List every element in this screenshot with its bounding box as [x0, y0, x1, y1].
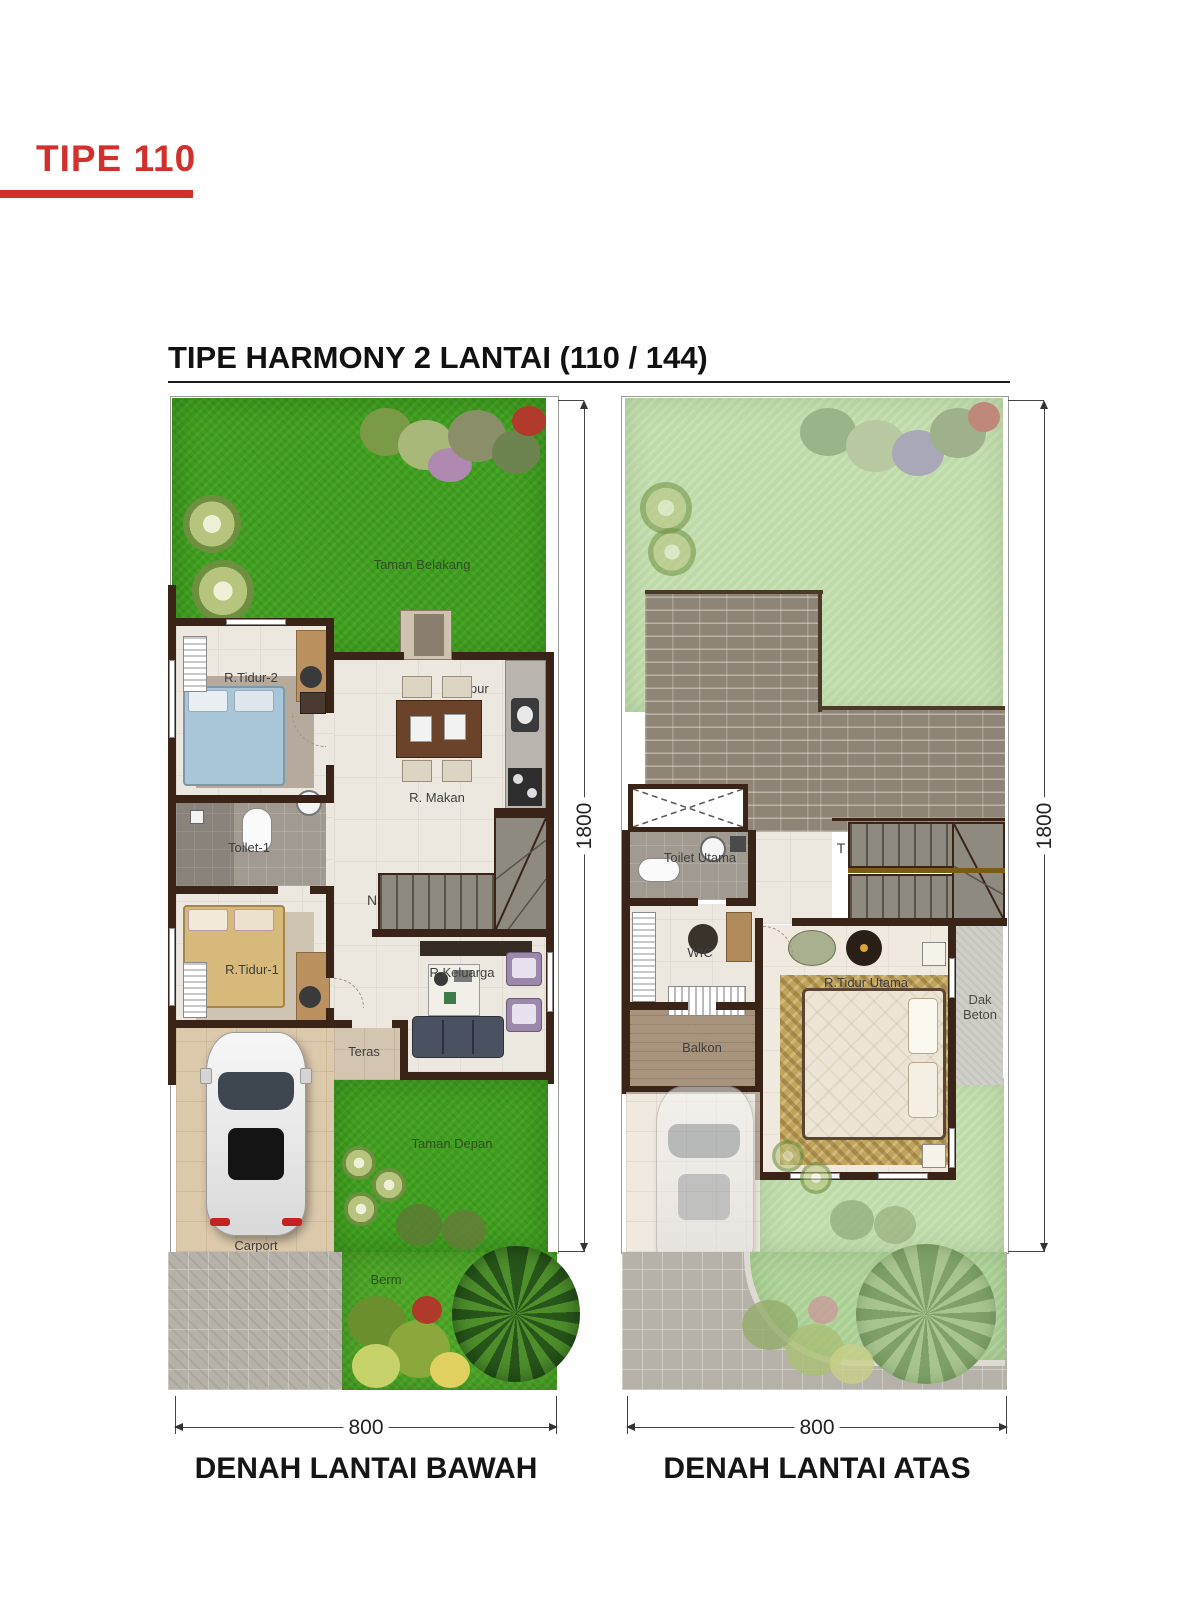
caption-denah-lantai-atas: DENAH LANTAI ATAS	[663, 1452, 970, 1486]
dining-chair	[402, 676, 432, 698]
window	[169, 660, 175, 738]
window	[949, 1128, 955, 1168]
floorplan-page: TIPE 110 TIPE HARMONY 2 LANTAI (110 / 14…	[0, 0, 1200, 1604]
wall-segment	[452, 652, 554, 660]
plant-faded	[968, 402, 1000, 432]
wall-segment	[792, 918, 1007, 926]
stair-marker-n: N	[367, 892, 377, 908]
lounge-chair	[788, 930, 836, 966]
plant	[512, 406, 546, 436]
room-label-berm: Berm	[370, 1272, 401, 1287]
dim-ext-line	[1008, 1251, 1044, 1252]
room-label-r-keluarga: R.Keluarga	[429, 965, 494, 980]
title-underline	[168, 381, 1010, 383]
plant-faded	[772, 1140, 804, 1172]
bawah-stairs-flight	[378, 873, 496, 931]
plant	[342, 1146, 376, 1180]
shower-area	[176, 803, 234, 886]
roof-edge	[818, 706, 1005, 710]
roof-edge	[645, 590, 823, 594]
dining-chair	[442, 760, 472, 782]
room-label-toilet-1: Toilet-1	[228, 840, 270, 855]
dining-chair	[442, 676, 472, 698]
room-label-taman-depan: Taman Depan	[412, 1136, 493, 1151]
laptop	[300, 692, 326, 714]
place-setting	[410, 716, 432, 742]
wall-segment	[726, 898, 756, 906]
wall-segment	[494, 808, 552, 816]
vanity-desk	[726, 912, 752, 962]
room-label-r-tidur-1: R.Tidur-1	[225, 962, 279, 977]
caption-denah-lantai-bawah: DENAH LANTAI BAWAH	[195, 1452, 538, 1486]
wall-segment	[372, 929, 552, 937]
plant	[430, 1352, 470, 1388]
dim-value-1800-atas: 1800	[1033, 798, 1057, 855]
wall-segment	[334, 652, 404, 660]
wardrobe	[632, 912, 656, 1002]
wardrobe	[183, 636, 207, 692]
room-label-dak-beton: Dak Beton	[958, 992, 1002, 1022]
palm-tree	[452, 1246, 580, 1382]
plant	[352, 1344, 400, 1388]
plant-faded	[830, 1200, 874, 1240]
room-label-r-makan: R. Makan	[409, 790, 465, 805]
bawah-stairs-winder	[494, 816, 548, 931]
car-sunroof	[228, 1128, 284, 1180]
dim-arrow	[999, 1423, 1008, 1431]
pillow	[234, 909, 274, 931]
plant-faded	[874, 1206, 916, 1244]
window	[169, 928, 175, 1006]
car-mirror	[300, 1068, 312, 1084]
dim-arrow	[580, 1243, 588, 1252]
room-label-wic: WIC	[687, 945, 712, 960]
plant	[344, 1192, 378, 1226]
atas-stairs-upper-flight	[848, 822, 954, 868]
room-label-r-tidur-utama: R.Tidur Utama	[824, 975, 908, 990]
room-label-taman-belakang: Taman Belakang	[374, 557, 471, 572]
room-label-toilet-utama: Toilet Utama	[664, 850, 736, 865]
winder-lines	[496, 818, 546, 929]
pillow	[908, 998, 938, 1054]
wall-segment	[326, 618, 334, 713]
dim-arrow	[174, 1423, 183, 1431]
car-sunroof	[678, 1174, 730, 1220]
page-title: TIPE HARMONY 2 LANTAI (110 / 144)	[168, 340, 708, 376]
wall-segment	[168, 886, 278, 894]
dining-chair	[402, 760, 432, 782]
type-badge-underline	[0, 190, 193, 198]
window	[226, 619, 286, 625]
plant	[492, 430, 540, 474]
wall-segment	[622, 830, 630, 1092]
stove-burner	[513, 774, 523, 784]
wall-segment	[400, 1020, 408, 1080]
plant-faded	[830, 1344, 874, 1384]
room-label-carport: Carport	[234, 1238, 277, 1253]
dim-value-800-atas: 800	[794, 1416, 839, 1440]
plant	[183, 495, 241, 553]
plant	[442, 1210, 486, 1250]
void-x-lines	[633, 789, 743, 827]
round-table-center	[860, 944, 868, 952]
atas-void-shaft	[628, 784, 748, 832]
stove-burner	[527, 788, 537, 798]
car	[206, 1032, 306, 1236]
sofa	[412, 1016, 504, 1058]
roof-edge	[818, 590, 822, 712]
window	[878, 1173, 928, 1179]
dim-arrow	[626, 1423, 635, 1431]
type-badge: TIPE 110	[36, 138, 196, 180]
wall-segment	[546, 652, 554, 1084]
wardrobe	[183, 962, 207, 1018]
dim-arrow	[580, 400, 588, 409]
shower-head	[190, 810, 204, 824]
atas-roof-right	[820, 708, 1005, 832]
dining-table	[396, 700, 482, 758]
car-windshield	[218, 1072, 294, 1110]
pillow	[188, 909, 228, 931]
wall-segment	[168, 1020, 352, 1028]
room-label-balkon: Balkon	[682, 1040, 722, 1055]
pillow	[234, 690, 274, 712]
window	[949, 958, 955, 998]
car-taillight	[210, 1218, 230, 1226]
car-mirror	[200, 1068, 212, 1084]
room-label-r-tidur-2: R.Tidur-2	[224, 670, 278, 685]
stair-marker-t: T	[837, 840, 846, 856]
plant	[372, 1168, 406, 1202]
wall-segment	[748, 830, 756, 904]
wall-segment	[755, 918, 763, 926]
dim-value-1800-bawah: 1800	[573, 798, 597, 855]
wall-segment	[408, 1072, 554, 1080]
plant-faded	[800, 1162, 832, 1194]
stair-handrail	[848, 868, 1005, 873]
nightstand	[922, 942, 946, 966]
pillow	[188, 690, 228, 712]
wall-segment	[622, 1002, 688, 1010]
room-label-teras: Teras	[348, 1044, 380, 1059]
plant-faded	[648, 528, 696, 576]
plant-faded	[640, 482, 692, 534]
plant	[192, 560, 254, 622]
plant	[412, 1296, 442, 1324]
pillow	[908, 1062, 938, 1118]
cabinet-item	[444, 992, 456, 1004]
place-setting	[444, 714, 466, 740]
sofa-cushion-line	[472, 1020, 474, 1054]
atas-hall-floor	[748, 832, 832, 924]
wall-segment	[168, 795, 334, 803]
dim-arrow	[1040, 400, 1048, 409]
car-taillight	[282, 1218, 302, 1226]
garden-step-inner	[414, 614, 444, 656]
wall-segment	[326, 886, 334, 978]
armchair-cushion	[512, 1004, 536, 1024]
armchair-cushion	[512, 958, 536, 978]
atas-stairs-lower-flight	[848, 874, 954, 920]
palm-tree-faded	[856, 1244, 996, 1384]
car-windshield	[668, 1124, 740, 1158]
dim-arrow	[549, 1423, 558, 1431]
dim-ext-line	[1008, 400, 1044, 401]
kitchen-sink-bowl	[517, 706, 533, 724]
desk-chair	[300, 666, 322, 688]
desk-chair	[299, 986, 321, 1008]
wash-basin	[296, 790, 322, 816]
nightstand	[922, 1144, 946, 1168]
stair-top-edge	[832, 818, 1005, 821]
window	[547, 952, 553, 1012]
bawah-sidewalk	[168, 1252, 342, 1390]
plant-faded	[808, 1296, 838, 1324]
car-faded	[656, 1086, 754, 1274]
dim-arrow	[1040, 1243, 1048, 1252]
wall-segment	[622, 898, 698, 906]
plant	[396, 1204, 442, 1246]
dim-value-800-bawah: 800	[343, 1416, 388, 1440]
sofa-cushion-line	[442, 1020, 444, 1054]
stove	[508, 768, 542, 806]
